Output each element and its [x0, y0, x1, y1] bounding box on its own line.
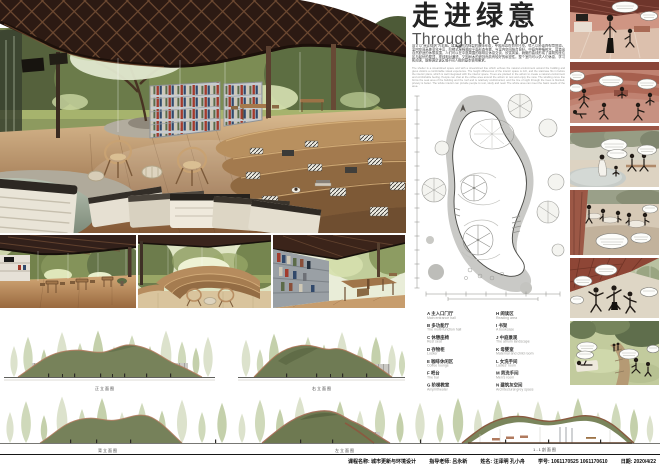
- advisor-name: 指导老师: 吕永新: [429, 457, 467, 465]
- front-elevation-label: 正立面图: [75, 386, 135, 392]
- presentation-board: 正立面图 右立面图 背立面图 左立面图 1-1剖面图 走进绿意 Through …: [0, 0, 660, 466]
- back-elevation-label: 背立面图: [78, 448, 138, 454]
- main-interior-rendering: [0, 0, 406, 233]
- footer-divider: [0, 454, 660, 455]
- right-elevation-label: 右立面图: [292, 386, 352, 392]
- plan-dimension-line: [426, 292, 560, 302]
- right-elevation-drawing: [238, 327, 405, 389]
- description-en: The shelter is a streamlined space and w…: [412, 67, 565, 88]
- storyboard-panel-activity: [570, 258, 659, 318]
- date: 日期: 2020/4/22: [621, 457, 656, 465]
- course-name: 课程名称: 城市更新与环境设计: [348, 457, 416, 465]
- legend-item: G 阶梯教室Amphitheater: [427, 383, 495, 392]
- legend-item: H 阅读区Reading area: [496, 311, 569, 320]
- storyboard-panel-coffee-area: [570, 190, 659, 255]
- legend-item: F 吧台The bar: [427, 371, 495, 380]
- plan-legend-left: A 主入口门厅Main entrance hall B 多功能厅The mult…: [427, 311, 495, 403]
- plan-legend-right: H 阅读区Reading area I 书架A bookcase J 中庭景观T…: [496, 311, 569, 403]
- storyboard-panel-atrium-pool: [570, 126, 659, 187]
- storyboard-panel-amphitheater: [570, 62, 659, 123]
- description-cn-block: 设计以“穿过绿荫”为主题。建筑采用流线型的曲线形态，呼应周边的自然环境，给人以舒…: [412, 44, 565, 66]
- legend-item: K 母婴室Maternal and child room: [496, 347, 569, 356]
- section-label: 1-1剖面图: [515, 447, 575, 453]
- site-plan-drawing: [408, 90, 570, 302]
- poster-title-cn: 走进绿意: [412, 2, 544, 31]
- student-ids: 学号: 1061170525 1061170610: [538, 457, 608, 465]
- tiered-seating-rendering: [138, 235, 271, 308]
- legend-item: D 存物柜Locker: [427, 347, 495, 356]
- elevation-section-row: [0, 396, 660, 450]
- title-block: 走进绿意 Through the Arbor: [412, 2, 544, 49]
- student-names: 姓名: 汪泽明 孔小舟: [480, 457, 524, 465]
- description-en-block: The shelter is a streamlined space and w…: [412, 67, 565, 91]
- legend-item: E 咖啡休闲区Coffee lounge: [427, 359, 495, 368]
- description-cn: 设计以“穿过绿荫”为主题。建筑采用流线型的曲线形态，呼应周边的自然环境，给人以舒…: [412, 44, 565, 63]
- legend-item: A 主入口门厅Main entrance hall: [427, 311, 495, 320]
- legend-item: B 多功能厅The multi-function hall: [427, 323, 495, 332]
- legend-item: C 休憩座椅Rest seat: [427, 335, 495, 344]
- cafe-interior-rendering: [0, 235, 136, 308]
- legend-item: N 建筑灰空间Architectural grey space: [496, 383, 569, 392]
- storyboard-panel-lawn: [570, 321, 659, 385]
- legend-item: M 男洗手间Men's room: [496, 371, 569, 380]
- legend-item: I 书架A bookcase: [496, 323, 569, 332]
- legend-item: L 女洗手间Ladies' room: [496, 359, 569, 368]
- storyboard-panel-entrance: [570, 0, 659, 59]
- legend-item: J 中庭景观The atrium landscape: [496, 335, 569, 344]
- plan-scale-ruler: [415, 96, 420, 288]
- bookshelf-aisle-rendering: [273, 235, 405, 308]
- storyboard-column: [570, 0, 659, 390]
- left-elevation-label: 左立面图: [315, 448, 375, 454]
- front-elevation-drawing: [4, 327, 215, 389]
- footer-info: 课程名称: 城市更新与环境设计 指导老师: 吕永新 姓名: 汪泽明 孔小舟 学号…: [348, 457, 656, 466]
